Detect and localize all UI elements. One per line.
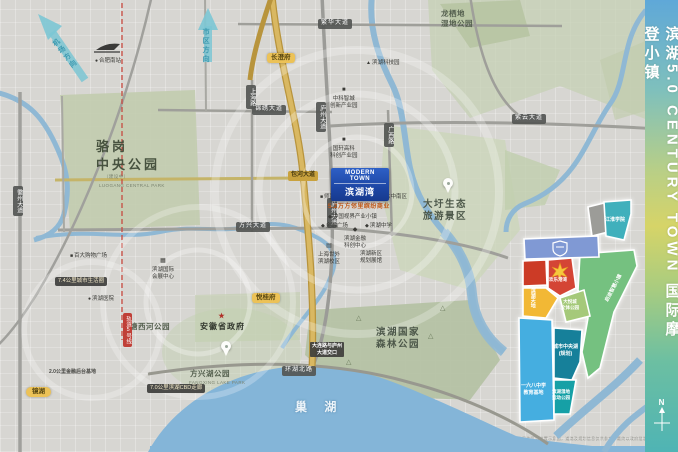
label-tangxihe-park: 塘西河公园 (130, 322, 170, 332)
map-label: 悦桂府 (252, 293, 280, 303)
map-label: 上海路 (246, 85, 256, 109)
map-label: ▤上海世外滨湖校区 (318, 243, 340, 266)
di-icon: ◆ (344, 227, 366, 235)
dot-icon: ● (95, 58, 98, 64)
label-daxu-scenic: 大圩生态旅游景区 (423, 199, 467, 224)
panel-label-wenti: 大悦城文体公园 (561, 299, 579, 311)
map-pin-daxu (443, 178, 453, 188)
sq-icon: ■ (70, 253, 73, 259)
label-wetland-park: 龙栖地湿地公园 (441, 9, 473, 29)
map-label: ◆中国视界产业小镇 (328, 214, 377, 221)
compass: N (651, 399, 673, 438)
map-pin-fangxing (221, 341, 231, 351)
page-title: 滨湖5.0 CENTURY TOWN 国际摩登小镇 (641, 26, 678, 356)
map-canvas: 骆岗中央公园（建设中）LUOGANG CENTRAL PARK大圩生态旅游景区滨… (0, 0, 678, 452)
map-label: 徽州大道 (13, 186, 23, 216)
label-layer: 骆岗中央公园（建设中）LUOGANG CENTRAL PARK大圩生态旅游景区滨… (0, 0, 678, 452)
map-label: 广西路 (384, 123, 394, 147)
sq-icon: ■ (330, 137, 358, 145)
panel-label-smart-town: 启迪智慧小镇 (604, 273, 624, 303)
bld-icon: ▲ (366, 60, 371, 66)
map-label: ■中科智城创新产业园 (330, 87, 358, 110)
panel-label-tiandi: 滨湖天地 (529, 288, 536, 308)
map-label: ■百大购物广场 (70, 253, 107, 260)
label-hefei-south-station: ●合肥南站 (95, 58, 121, 65)
label-dir-city: 市区方向 (201, 28, 210, 64)
compass-icon (651, 407, 673, 433)
compass-n-label: N (651, 399, 673, 407)
hall-icon: ▦ (152, 258, 174, 266)
label-chaohu-lake: 巢 湖 (295, 400, 343, 416)
map-label: ▲滨湖科技园 (366, 60, 399, 67)
label-luogang-sub: （建设中） (104, 174, 129, 180)
map-label: 锦绣大道 (252, 105, 286, 115)
map-label: 长澄府 (267, 53, 295, 63)
map-label: ◆滨湖中学 (365, 223, 392, 230)
map-label: 庐州大道 (316, 102, 326, 132)
map-label: 环湖北路 (282, 366, 316, 376)
project-marker-en: MODERN TOWN (334, 170, 386, 184)
panel-label-jianghuai: 江淮学院 (605, 217, 625, 224)
di-icon: ◆ (328, 214, 332, 220)
map-label: 2.0公里金融后台基地 (49, 369, 96, 376)
map-label: 5.2万方邻里缤纷商业 (328, 204, 390, 212)
map-label: 紫云大道 (512, 114, 546, 124)
map-label: ■国轩高科科创产业园 (330, 137, 358, 160)
star-icon: ★ (200, 312, 244, 321)
panel-label-school168: 一六八中学教育基地 (521, 383, 546, 397)
map-label: 轨道5号线 (123, 313, 132, 347)
map-label: ●滨湖医院 (88, 296, 114, 303)
map-label: 方兴大道 (236, 222, 270, 232)
project-marker[interactable]: MODERN TOWN 滨湖湾 (331, 168, 389, 201)
panel-label-central-lake: 城市中央湖(规划) (553, 344, 578, 358)
map-label: 繁华大道 (318, 19, 352, 29)
map-label: 7.4公里城市生活圈 (55, 277, 107, 286)
project-marker-cn: 滨湖湾 (331, 185, 389, 198)
label-luogang-park: 骆岗中央公园 (96, 138, 160, 173)
sq-icon: ■ (320, 194, 323, 200)
dot-icon: ● (88, 296, 91, 302)
map-label: △ (346, 358, 351, 367)
map-label: 7.0公里滨湖CBD走廊 (147, 384, 205, 393)
label-forest-park: 滨湖国家森林公园 (376, 327, 420, 352)
label-gov: ★安徽省政府 (200, 312, 245, 332)
label-luogang-en: LUOGANG CENTRAL PARK (99, 183, 165, 189)
school-icon: ▤ (318, 243, 340, 251)
map-label: △ (356, 314, 361, 323)
map-label: 滨湖新区规划展馆 (360, 251, 382, 265)
map-label: △ (428, 332, 433, 341)
panel-label-joy-harbor: 欢乐港湾 (549, 277, 567, 283)
panel-label-sports-park: 滨湖湿地运动公园 (552, 389, 570, 401)
label-fangxing-park: 方兴湖公园 (190, 369, 230, 379)
map-label: 大连路与庐州大道交口 (310, 342, 344, 357)
map-label: △ (440, 304, 445, 313)
map-label: 包河大道 (288, 171, 318, 181)
map-label: ▦滨湖国际会展中心 (152, 258, 174, 281)
map-label: ◆滨湖金融科创中心 (344, 227, 366, 250)
title-sidebar: 滨湖5.0 CENTURY TOWN 国际摩登小镇 N (645, 0, 678, 452)
map-label: 镜湖 (26, 387, 51, 397)
label-dir-airport: 机场方向 (50, 37, 79, 71)
di-icon: ◆ (321, 223, 325, 229)
sq-icon: ■ (330, 87, 358, 95)
